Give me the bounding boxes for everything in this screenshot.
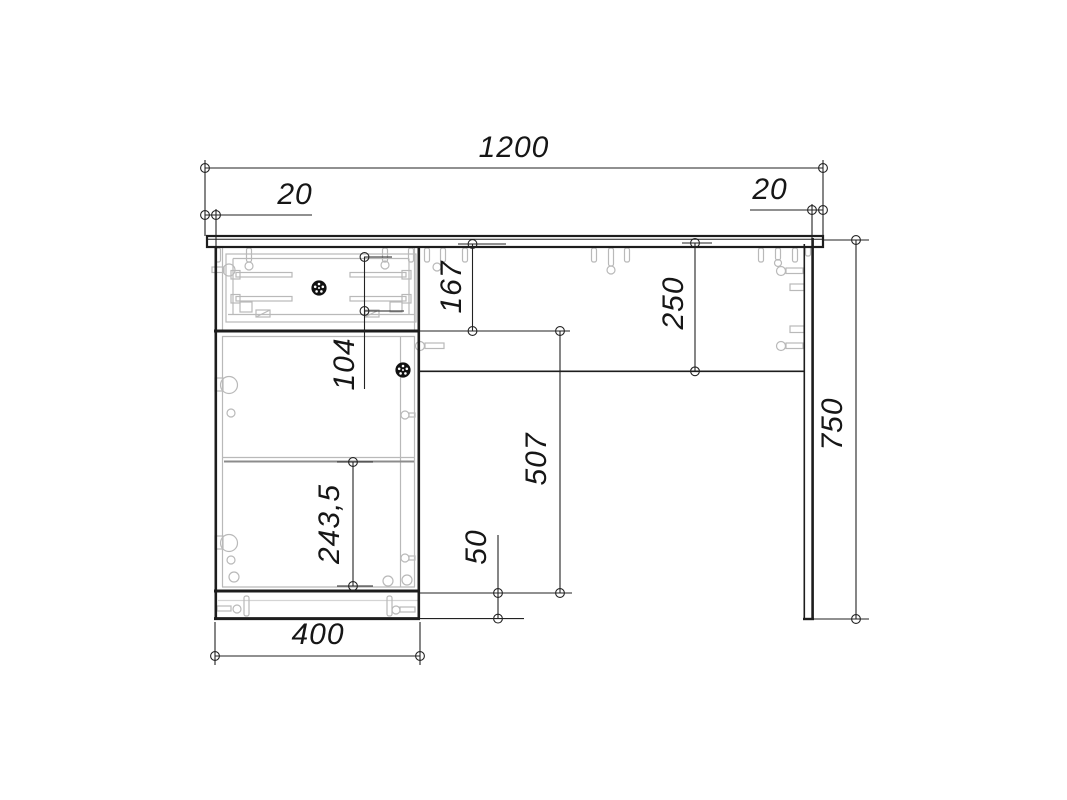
door-knob [395,362,410,377]
tabletop [207,236,823,247]
drawer-knob [311,280,326,295]
hardware-details [212,240,811,616]
label-apron-height: 250 [657,276,690,330]
label-door-section: 507 [520,432,553,485]
plinth-fittings [217,596,418,616]
dimension-labels: 1200 20 20 167 104 250 507 243,5 50 400 … [276,131,849,651]
cam-lock [777,267,805,351]
shelf-pin [383,411,415,586]
drawing-page: 1200 20 20 167 104 250 507 243,5 50 400 … [0,0,1067,800]
carcass [207,236,823,619]
label-right-overhang: 20 [751,173,787,206]
label-overall-height: 750 [816,397,849,450]
label-overall-width: 1200 [479,131,550,164]
label-left-overhang: 20 [276,178,312,211]
label-drawer-section: 167 [435,260,468,313]
label-plinth-height: 50 [460,529,493,564]
desk-front-view-drawing: 1200 20 20 167 104 250 507 243,5 50 400 … [0,0,1067,800]
dim-plinth-height [420,535,572,623]
door-hinge [215,377,239,583]
label-shelf-spacing: 243,5 [313,484,346,565]
label-drawer-box: 104 [328,337,361,390]
dim-door-section [556,327,565,598]
label-pedestal-width: 400 [291,618,344,651]
